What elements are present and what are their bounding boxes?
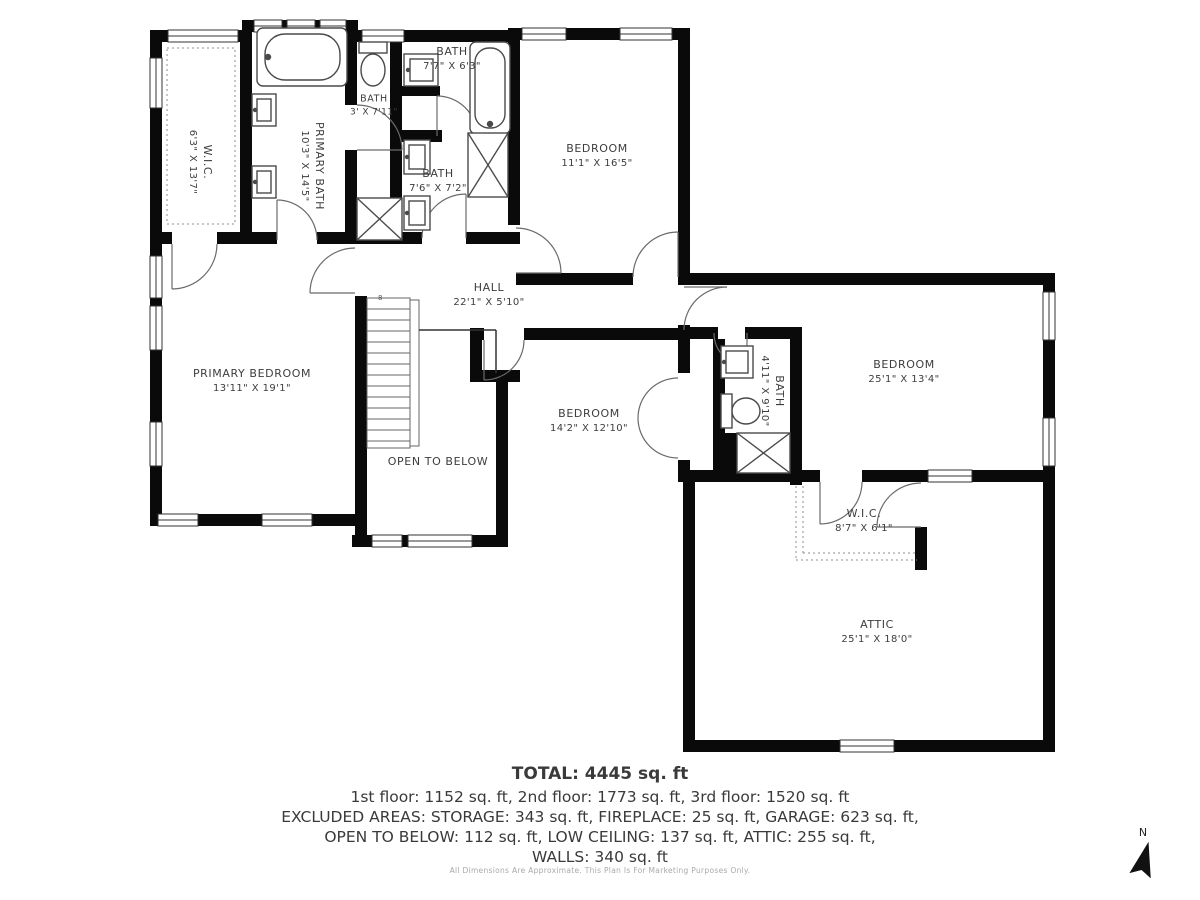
room-label-primary-bedroom: PRIMARY BEDROOM 13'11" X 19'1" bbox=[193, 366, 311, 396]
area-summary: TOTAL: 4445 sq. ft 1st floor: 1152 sq. f… bbox=[0, 764, 1200, 867]
sink bbox=[721, 346, 753, 378]
disclaimer-text: All Dimensions Are Approximate. This Pla… bbox=[0, 866, 1200, 875]
room-label-open-to-below: OPEN TO BELOW bbox=[388, 454, 488, 470]
stair-count-label: 8 bbox=[378, 294, 382, 302]
door-bedroom25 bbox=[684, 287, 727, 330]
low-ceiling-dashes bbox=[167, 48, 917, 560]
room-label-bedroom-right: BEDROOM 25'1" X 13'4" bbox=[868, 357, 939, 387]
room-label-bedroom-center: BEDROOM 14'2" X 12'10" bbox=[550, 406, 628, 436]
room-label-bedroom-top: BEDROOM 11'1" X 16'5" bbox=[561, 141, 632, 171]
shower bbox=[357, 198, 402, 240]
window bbox=[168, 30, 238, 42]
sink bbox=[404, 196, 430, 230]
room-label-bath-small: BATH 3' X 7'11" bbox=[350, 93, 398, 120]
room-label-attic: ATTIC 25'1" X 18'0" bbox=[841, 617, 912, 647]
fixtures bbox=[252, 28, 790, 473]
room-label-wic-primary: W.I.C. 6'3" X 13'7" bbox=[185, 130, 215, 195]
window bbox=[150, 256, 162, 298]
floor-areas: 1st floor: 1152 sq. ft, 2nd floor: 1773 … bbox=[0, 787, 1200, 807]
window bbox=[150, 58, 162, 108]
sink bbox=[252, 166, 276, 198]
window bbox=[1043, 292, 1055, 340]
shower bbox=[737, 433, 790, 473]
window bbox=[158, 514, 198, 526]
total-area: TOTAL: 4445 sq. ft bbox=[0, 764, 1200, 784]
window bbox=[362, 30, 404, 42]
room-label-wic-2: W.I.C. 8'7" X 6'1" bbox=[835, 506, 893, 536]
floor-plan-page: W.I.C. 6'3" X 13'7" PRIMARY BATH 10'3" X… bbox=[0, 0, 1200, 900]
window bbox=[928, 470, 972, 482]
door-primary-bedroom bbox=[310, 248, 355, 293]
door-primary-wic bbox=[172, 244, 217, 289]
excluded-areas-line2: OPEN TO BELOW: 112 sq. ft, LOW CEILING: … bbox=[0, 827, 1200, 847]
walls-area: WALLS: 340 sq. ft bbox=[0, 847, 1200, 867]
window bbox=[372, 535, 402, 547]
window bbox=[1043, 418, 1055, 466]
compass-north-label: N bbox=[1131, 826, 1155, 839]
window bbox=[150, 306, 162, 350]
door-bedroom11-right bbox=[633, 232, 678, 277]
toilet bbox=[721, 394, 760, 428]
window bbox=[262, 514, 312, 526]
room-label-primary-bath: PRIMARY BATH 10'3" X 14'5" bbox=[297, 122, 327, 210]
shower bbox=[468, 133, 508, 197]
window bbox=[408, 535, 472, 547]
window bbox=[150, 422, 162, 466]
room-label-bath-top: BATH 7'7" X 6'3" bbox=[423, 44, 481, 74]
window bbox=[620, 28, 672, 40]
stair-railing bbox=[410, 300, 419, 446]
closet-double-doors bbox=[638, 378, 678, 458]
room-label-bath-middle: BATH 7'6" X 7'2" bbox=[409, 166, 467, 196]
bathtub bbox=[257, 28, 347, 86]
room-label-hall: HALL 22'1" X 5'10" bbox=[453, 280, 524, 310]
window bbox=[522, 28, 566, 40]
staircase bbox=[367, 298, 419, 448]
door-bedroom11-left bbox=[516, 228, 561, 273]
excluded-areas-line1: EXCLUDED AREAS: STORAGE: 343 sq. ft, FIR… bbox=[0, 807, 1200, 827]
doors bbox=[172, 96, 921, 527]
room-label-bath-vertical: BATH 4'11" X 9'10" bbox=[757, 355, 787, 426]
sink bbox=[252, 94, 276, 126]
window bbox=[840, 740, 894, 752]
toilet bbox=[359, 42, 387, 86]
